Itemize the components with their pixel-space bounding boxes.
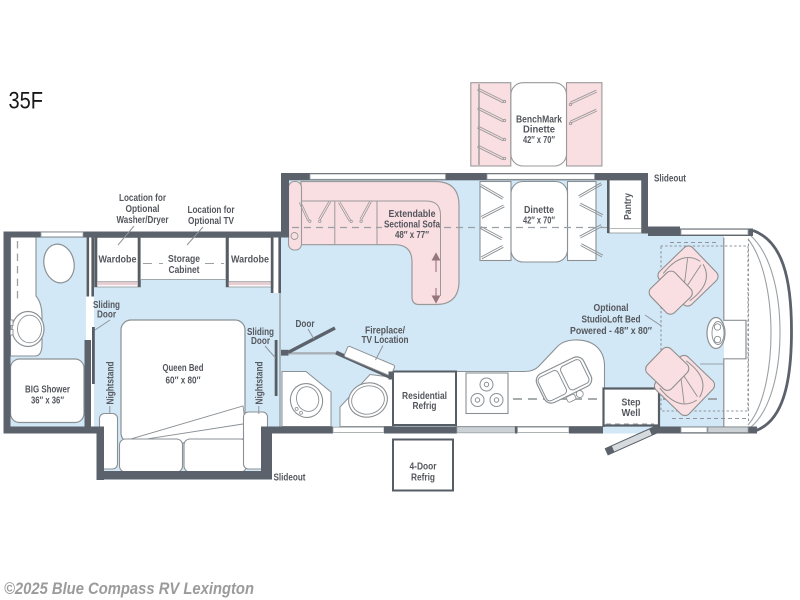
svg-text:Washer/Dryer: Washer/Dryer	[117, 215, 169, 226]
svg-text:36″ x 36″: 36″ x 36″	[31, 396, 64, 407]
svg-text:Nightstand: Nightstand	[105, 362, 116, 405]
svg-text:Cabinet: Cabinet	[169, 265, 201, 276]
svg-text:60″ x 80″: 60″ x 80″	[166, 376, 201, 387]
svg-text:42″ x 70″: 42″ x 70″	[523, 135, 555, 146]
svg-text:Door: Door	[97, 310, 116, 321]
svg-text:Door: Door	[296, 319, 315, 330]
svg-text:BIG Shower: BIG Shower	[25, 385, 70, 396]
svg-text:©2025 Blue Compass RV Lexingto: ©2025 Blue Compass RV Lexington	[4, 580, 254, 598]
svg-text:Optional TV: Optional TV	[188, 216, 234, 227]
svg-text:Refrig: Refrig	[413, 401, 437, 412]
svg-text:Slideout: Slideout	[654, 173, 686, 184]
svg-text:Location for: Location for	[188, 205, 235, 216]
svg-text:Wardobe: Wardobe	[99, 254, 137, 265]
svg-text:Nightstand: Nightstand	[254, 362, 265, 405]
svg-text:TV Location: TV Location	[362, 335, 409, 346]
svg-text:48″ x 77″: 48″ x 77″	[395, 230, 429, 241]
svg-text:Pantry: Pantry	[623, 193, 634, 220]
svg-text:42″ x 70″: 42″ x 70″	[523, 216, 555, 227]
svg-text:Sectional Sofa: Sectional Sofa	[384, 220, 440, 231]
svg-text:Location for: Location for	[119, 193, 166, 204]
svg-text:Queen Bed: Queen Bed	[163, 363, 204, 374]
svg-text:Wardobe: Wardobe	[231, 254, 269, 265]
svg-text:StudioLoft Bed: StudioLoft Bed	[582, 315, 641, 326]
svg-text:Optional: Optional	[126, 204, 160, 215]
svg-text:Door: Door	[251, 336, 270, 347]
svg-text:Storage: Storage	[168, 254, 200, 265]
svg-text:35F: 35F	[9, 88, 44, 115]
svg-text:Slideout: Slideout	[274, 473, 306, 484]
svg-text:Well: Well	[622, 408, 641, 419]
svg-text:Refrig: Refrig	[411, 473, 435, 484]
svg-text:Dinette: Dinette	[524, 205, 554, 216]
svg-text:Optional: Optional	[594, 303, 629, 314]
svg-text:Powered - 48″ x 80″: Powered - 48″ x 80″	[570, 326, 652, 337]
svg-text:4-Door: 4-Door	[410, 462, 437, 473]
svg-text:Extendable: Extendable	[389, 209, 436, 220]
